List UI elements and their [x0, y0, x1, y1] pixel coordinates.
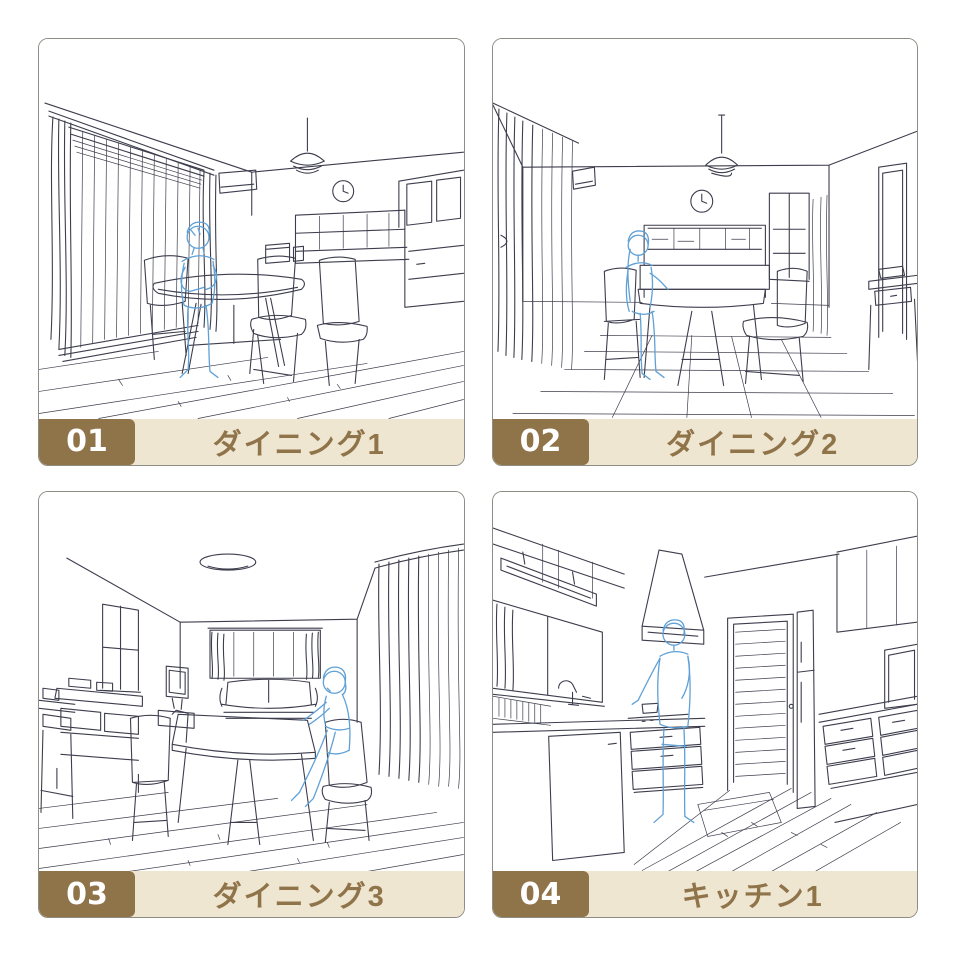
wall-clock: [690, 190, 712, 212]
upper-cabinets-left: [493, 528, 624, 606]
panel-dining-3: 03 ダイニング3: [38, 491, 465, 919]
counter-right: [819, 696, 917, 822]
room-walls: [67, 558, 375, 722]
floor-planks: [512, 335, 914, 417]
window-curtains: [493, 103, 578, 369]
dining-table: [153, 274, 304, 373]
pendant-lamp: [705, 115, 737, 176]
sofa: [220, 679, 317, 718]
refrigerator: [797, 610, 815, 808]
tv-stand: [158, 666, 194, 728]
right-curtains: [375, 544, 463, 788]
caption-bar: 01 ダイニング1: [39, 419, 464, 465]
panel-label: キッチン1: [589, 871, 918, 917]
caption-bar: 04 キッチン1: [493, 871, 918, 917]
floor-planks: [39, 792, 464, 871]
room-walls: [493, 105, 918, 307]
counter-hutch: [640, 225, 769, 297]
dining-1-illustration: [39, 39, 464, 419]
right-door-and-desk: [868, 163, 917, 369]
chairs: [144, 256, 367, 386]
air-conditioner: [219, 170, 257, 193]
kitchen-counter: [266, 170, 464, 307]
pendant-lamp: [291, 118, 325, 173]
panel-kitchen-1: 04 キッチン1: [492, 491, 919, 919]
panel-number: 03: [39, 871, 135, 917]
panel-number: 02: [493, 419, 589, 465]
panel-label: ダイニング3: [135, 871, 464, 917]
wall-clock: [333, 181, 354, 202]
room-walls: [45, 103, 464, 215]
dining-table: [172, 714, 315, 844]
louvered-door: [727, 614, 793, 792]
chairs: [604, 268, 807, 383]
window-sink: [493, 600, 604, 725]
upper-cabinets-right: [836, 536, 917, 708]
panel-label: ダイニング1: [135, 419, 464, 465]
kitchen-1-illustration: [493, 492, 918, 872]
range-hood: [642, 550, 839, 644]
dining-2-illustration: [493, 39, 918, 419]
seated-figure-sketch: [292, 667, 350, 806]
tall-cabinet: [769, 193, 827, 335]
panel-grid: 01 ダイニング1: [0, 0, 960, 960]
caption-bar: 02 ダイニング2: [493, 419, 918, 465]
back-window: [208, 628, 322, 680]
panel-dining-1: 01 ダイニング1: [38, 38, 465, 466]
panel-number: 01: [39, 419, 135, 465]
panel-dining-2: 02 ダイニング2: [492, 38, 919, 466]
dining-3-illustration: [39, 492, 464, 872]
panel-label: ダイニング2: [589, 419, 918, 465]
caption-bar: 03 ダイニング3: [39, 871, 464, 917]
panel-number: 04: [493, 871, 589, 917]
left-window-sideboard: [39, 604, 142, 818]
counter-left: [493, 703, 705, 860]
floor-and-mat: [634, 788, 900, 871]
ceiling-light: [200, 554, 256, 570]
air-conditioner: [572, 167, 595, 189]
